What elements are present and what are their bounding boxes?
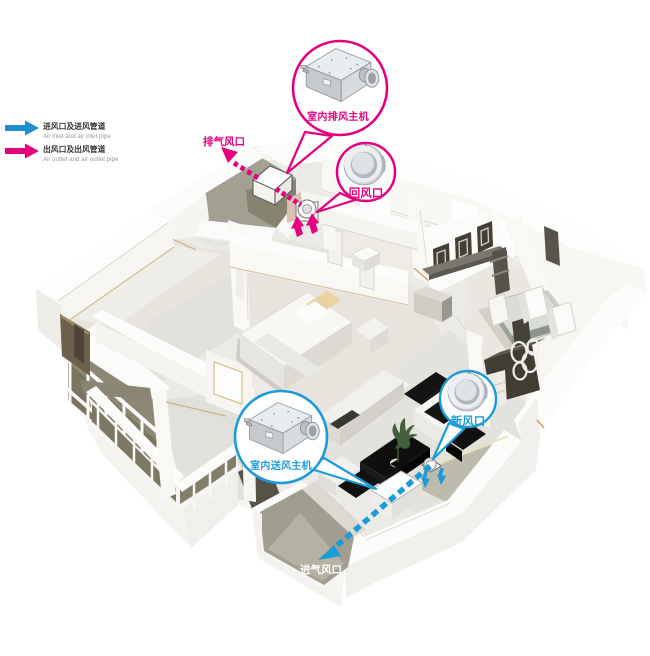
svg-text:进风口及进风管道: 进风口及进风管道 — [43, 121, 106, 131]
svg-text:Air inlet and air inlet pipe: Air inlet and air inlet pipe — [43, 133, 111, 140]
svg-text:出风口及出风管道: 出风口及出风管道 — [43, 144, 106, 154]
svg-text:Air outlet and air outlet pipe: Air outlet and air outlet pipe — [43, 156, 119, 163]
svg-text:排气风口: 排气风口 — [203, 135, 245, 148]
svg-text:回风口: 回风口 — [349, 186, 384, 200]
svg-text:进气风口: 进气风口 — [300, 563, 342, 576]
svg-text:新风口: 新风口 — [451, 414, 486, 428]
svg-text:室内排风主机: 室内排风主机 — [307, 110, 369, 123]
svg-text:室内送风主机: 室内送风主机 — [250, 459, 312, 472]
